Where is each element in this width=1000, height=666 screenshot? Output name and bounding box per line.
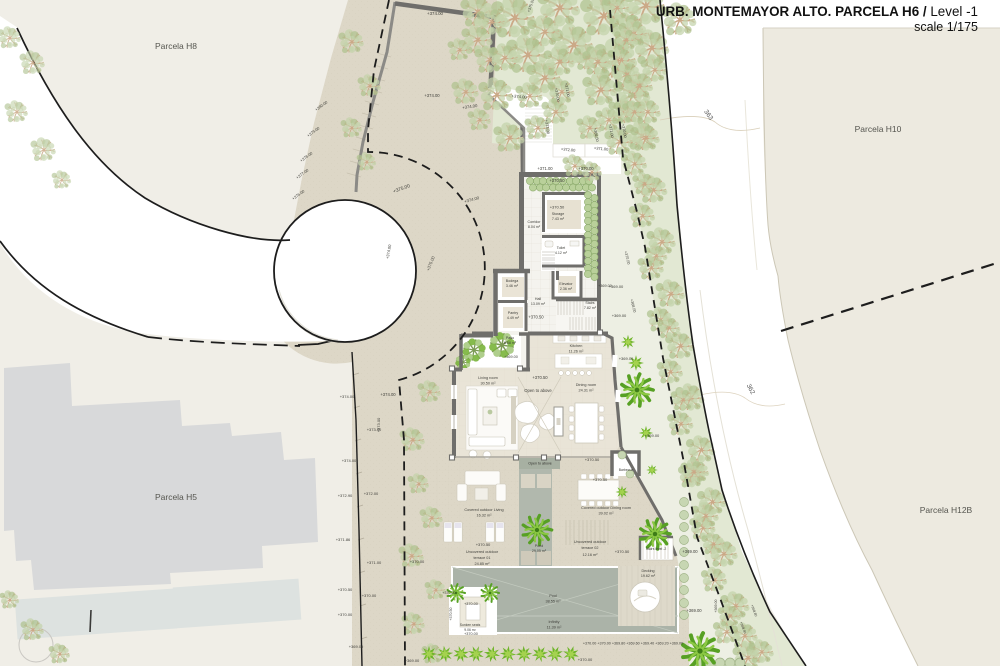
svg-text:Barbecue: Barbecue xyxy=(619,468,634,472)
svg-text:30.50 m²: 30.50 m² xyxy=(481,381,497,385)
svg-text:11.26 m²: 11.26 m² xyxy=(569,349,584,353)
svg-text:+370.00: +370.00 xyxy=(362,593,377,598)
svg-text:+369.00: +369.00 xyxy=(612,313,627,318)
svg-text:Covered outdoor Living: Covered outdoor Living xyxy=(464,508,503,512)
svg-text:Patio: Patio xyxy=(506,336,514,340)
svg-text:+369.00: +369.00 xyxy=(686,608,702,613)
svg-text:Bodega: Bodega xyxy=(506,279,518,283)
svg-text:+373.00: +373.00 xyxy=(367,427,382,432)
svg-text:+371.00: +371.00 xyxy=(367,560,382,565)
svg-text:+371.86: +371.86 xyxy=(336,537,351,542)
svg-text:7.43 m²: 7.43 m² xyxy=(552,217,565,221)
svg-text:+369.00: +369.00 xyxy=(504,355,518,359)
svg-text:24.85 m²: 24.85 m² xyxy=(475,562,491,566)
svg-text:16.32 m²: 16.32 m² xyxy=(477,513,493,517)
svg-text:+374.00: +374.00 xyxy=(424,93,440,98)
svg-text:+370.00: +370.00 xyxy=(578,166,594,171)
svg-text:Toilet: Toilet xyxy=(557,246,565,250)
svg-text:Covered outdoor Dining room: Covered outdoor Dining room xyxy=(581,506,631,510)
svg-text:+370.00: +370.00 xyxy=(578,657,593,662)
svg-text:Parcela H8: Parcela H8 xyxy=(155,41,197,51)
svg-text:+372.00: +372.00 xyxy=(364,491,379,496)
svg-text:Hall: Hall xyxy=(535,297,541,301)
svg-text:+370.50: +370.50 xyxy=(615,549,630,554)
svg-text:+370.00: +370.00 xyxy=(338,612,353,617)
svg-text:+370.50: +370.50 xyxy=(476,542,491,547)
svg-text:+370.50: +370.50 xyxy=(549,178,565,183)
svg-text:Storage: Storage xyxy=(552,212,565,216)
svg-text:+374.00: +374.00 xyxy=(342,458,357,463)
svg-text:+374.00: +374.00 xyxy=(340,394,355,399)
svg-text:Kitchen: Kitchen xyxy=(570,344,583,348)
svg-text:+369.00: +369.00 xyxy=(349,644,364,649)
svg-text:+369.00: +369.00 xyxy=(645,433,660,438)
svg-text:+369.00: +369.00 xyxy=(619,356,634,361)
svg-text:+370.50: +370.50 xyxy=(550,205,565,210)
svg-text:38.55 m²: 38.55 m² xyxy=(546,599,562,603)
svg-text:Uncovered outdoor: Uncovered outdoor xyxy=(574,540,607,544)
svg-text:4.12 m²: 4.12 m² xyxy=(555,251,568,255)
svg-text:+370.00: +370.00 xyxy=(410,559,425,564)
svg-text:Parcela H12B: Parcela H12B xyxy=(920,505,973,515)
svg-text:+370.50: +370.50 xyxy=(593,477,608,482)
svg-text:2.36 m²: 2.36 m² xyxy=(560,287,573,291)
svg-text:Stairs level -2: Stairs level -2 xyxy=(646,547,667,551)
svg-text:Sunken seats: Sunken seats xyxy=(460,623,481,627)
svg-text:+372.90: +372.90 xyxy=(338,493,353,498)
svg-text:Open to above: Open to above xyxy=(524,388,552,393)
svg-text:Pool: Pool xyxy=(549,594,557,598)
svg-text:Decking: Decking xyxy=(642,569,655,573)
svg-text:+370.00: +370.00 xyxy=(464,602,478,606)
svg-text:Pantry: Pantry xyxy=(508,311,519,315)
svg-text:+369.00: +369.00 xyxy=(598,284,612,288)
svg-text:+370.50: +370.50 xyxy=(449,607,453,620)
svg-text:Living room: Living room xyxy=(478,376,498,380)
svg-text:+369.00: +369.00 xyxy=(405,658,420,663)
svg-text:7.82 m²: 7.82 m² xyxy=(584,306,597,310)
svg-text:Parcela H5: Parcela H5 xyxy=(155,492,197,502)
svg-text:+374.00: +374.00 xyxy=(380,392,396,397)
svg-text:+369.00: +369.00 xyxy=(714,599,718,612)
svg-text:12.16 m²: 12.16 m² xyxy=(583,553,599,557)
svg-text:Infinity: Infinity xyxy=(549,620,560,624)
svg-text:+370.50: +370.50 xyxy=(585,457,600,462)
svg-text:Stairs: Stairs xyxy=(585,301,594,305)
svg-text:+370.50: +370.50 xyxy=(528,315,544,320)
svg-text:8.04 m²: 8.04 m² xyxy=(528,225,541,229)
svg-text:terrace 01: terrace 01 xyxy=(473,556,490,560)
svg-text:scale 1/175: scale 1/175 xyxy=(914,20,978,34)
svg-text:Corridor: Corridor xyxy=(528,220,542,224)
svg-text:Uncovered outdoor: Uncovered outdoor xyxy=(466,550,499,554)
svg-text:+374.00: +374.00 xyxy=(427,11,444,16)
svg-text:+371.00: +371.00 xyxy=(537,166,553,171)
svg-text:Parcela H10: Parcela H10 xyxy=(855,124,902,134)
svg-text:+369.00: +369.00 xyxy=(682,549,698,554)
svg-text:+370.50: +370.50 xyxy=(532,375,548,380)
svg-text:39.02 m²: 39.02 m² xyxy=(599,511,615,515)
svg-text:+370.00: +370.00 xyxy=(442,591,455,595)
svg-text:+370.00 +370.00 +369.80 +36: +370.00 +370.00 +369.80 +369.60 +369.40 … xyxy=(583,642,683,646)
svg-text:terrace 02: terrace 02 xyxy=(581,546,598,550)
svg-text:4.49 m²: 4.49 m² xyxy=(507,316,520,320)
svg-text:+370.00: +370.00 xyxy=(464,632,478,636)
svg-text:Open to above: Open to above xyxy=(528,462,552,466)
svg-text:24.31 m²: 24.31 m² xyxy=(579,388,595,392)
svg-text:13.09 m²: 13.09 m² xyxy=(531,302,546,306)
svg-text:Pond: Pond xyxy=(535,544,543,548)
svg-text:+370.50: +370.50 xyxy=(338,587,353,592)
svg-text:29.05 m²: 29.05 m² xyxy=(532,549,547,553)
svg-text:URB. MONTEMAYOR ALTO. PARCELA: URB. MONTEMAYOR ALTO. PARCELA H6 / Level… xyxy=(656,4,978,19)
svg-text:Elevator: Elevator xyxy=(559,282,573,286)
svg-text:8.68 m²: 8.68 m² xyxy=(504,341,517,345)
svg-text:Dining room: Dining room xyxy=(576,383,596,387)
svg-text:11.39 m²: 11.39 m² xyxy=(547,625,562,629)
svg-text:3.46 m²: 3.46 m² xyxy=(506,284,519,288)
svg-text:19.62 m²: 19.62 m² xyxy=(641,574,656,578)
